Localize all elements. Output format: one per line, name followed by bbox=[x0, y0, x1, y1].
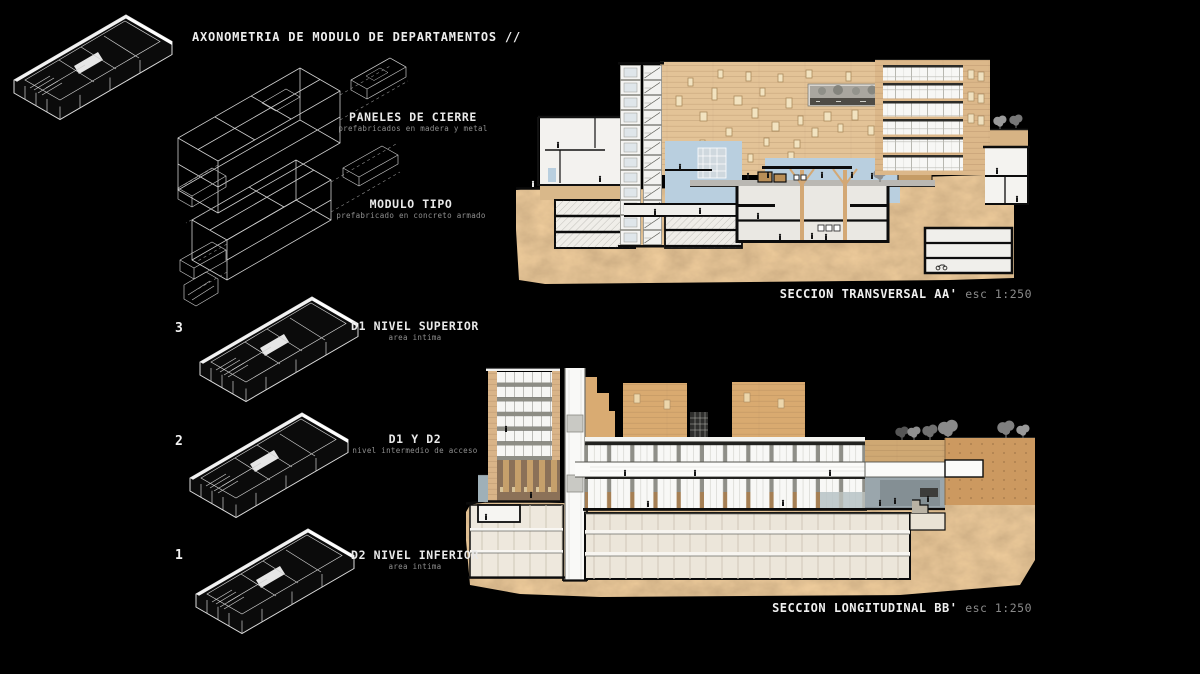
stair-tower bbox=[618, 62, 664, 248]
right-concrete-block bbox=[945, 420, 1035, 505]
label-text: PANELES DE CIERRE bbox=[328, 111, 498, 124]
level-number-2: 2 bbox=[175, 434, 183, 449]
plan-axon-level-2 bbox=[190, 413, 348, 518]
board-artwork bbox=[0, 0, 1200, 674]
module-2-wireframe bbox=[192, 160, 331, 280]
label-paneles-de-cierre: PANELES DE CIERRE prefabricados en mader… bbox=[328, 111, 498, 134]
plan-axon-level-3 bbox=[200, 297, 358, 402]
label-modulo-tipo: MODULO TIPO prefabricado en concreto arm… bbox=[326, 198, 496, 221]
label-d1-y-d2: D1 Y D2 nivel intermedio de acceso bbox=[330, 433, 500, 456]
label-subtext: nivel intermedio de acceso bbox=[330, 446, 500, 456]
page-title: AXONOMETRIA DE MODULO DE DEPARTAMENTOS /… bbox=[192, 30, 521, 44]
label-subtext: prefabricado en concreto armado bbox=[326, 211, 496, 221]
buried-rooms bbox=[925, 228, 1012, 273]
presentation-board: AXONOMETRIA DE MODULO DE DEPARTAMENTOS /… bbox=[0, 0, 1200, 674]
label-d1-nivel-superior: D1 NIVEL SUPERIOR area intima bbox=[330, 320, 500, 343]
exploded-axonometric-drawing bbox=[178, 58, 408, 306]
level-number-1: 1 bbox=[175, 548, 183, 563]
label-subtext: area intima bbox=[330, 562, 500, 572]
caption-title: SECCION LONGITUDINAL BB' bbox=[772, 601, 957, 615]
caption-title: SECCION TRANSVERSAL AA' bbox=[780, 287, 958, 301]
section-transversal-drawing bbox=[516, 60, 1030, 285]
module-1-wireframe bbox=[178, 68, 340, 213]
label-subtext: area intima bbox=[330, 333, 500, 343]
label-d2-nivel-inferior: D2 NIVEL INFERIOR area intima bbox=[330, 549, 500, 572]
label-text: D1 NIVEL SUPERIOR bbox=[330, 320, 500, 333]
caption-scale: esc 1:250 bbox=[965, 601, 1032, 615]
plan-axon-level-1 bbox=[196, 529, 354, 634]
label-text: MODULO TIPO bbox=[326, 198, 496, 211]
caption-scale: esc 1:250 bbox=[965, 287, 1032, 301]
label-text: D2 NIVEL INFERIOR bbox=[330, 549, 500, 562]
level-number-3: 3 bbox=[175, 321, 183, 336]
label-text: D1 Y D2 bbox=[330, 433, 500, 446]
caption-seccion-transversal: SECCION TRANSVERSAL AA' esc 1:250 bbox=[780, 287, 1032, 301]
label-subtext: prefabricados en madera y metal bbox=[328, 124, 498, 134]
caption-seccion-longitudinal: SECCION LONGITUDINAL BB' esc 1:250 bbox=[772, 601, 1032, 615]
section-longitudinal-drawing bbox=[466, 368, 1035, 597]
background-towers bbox=[585, 377, 805, 442]
